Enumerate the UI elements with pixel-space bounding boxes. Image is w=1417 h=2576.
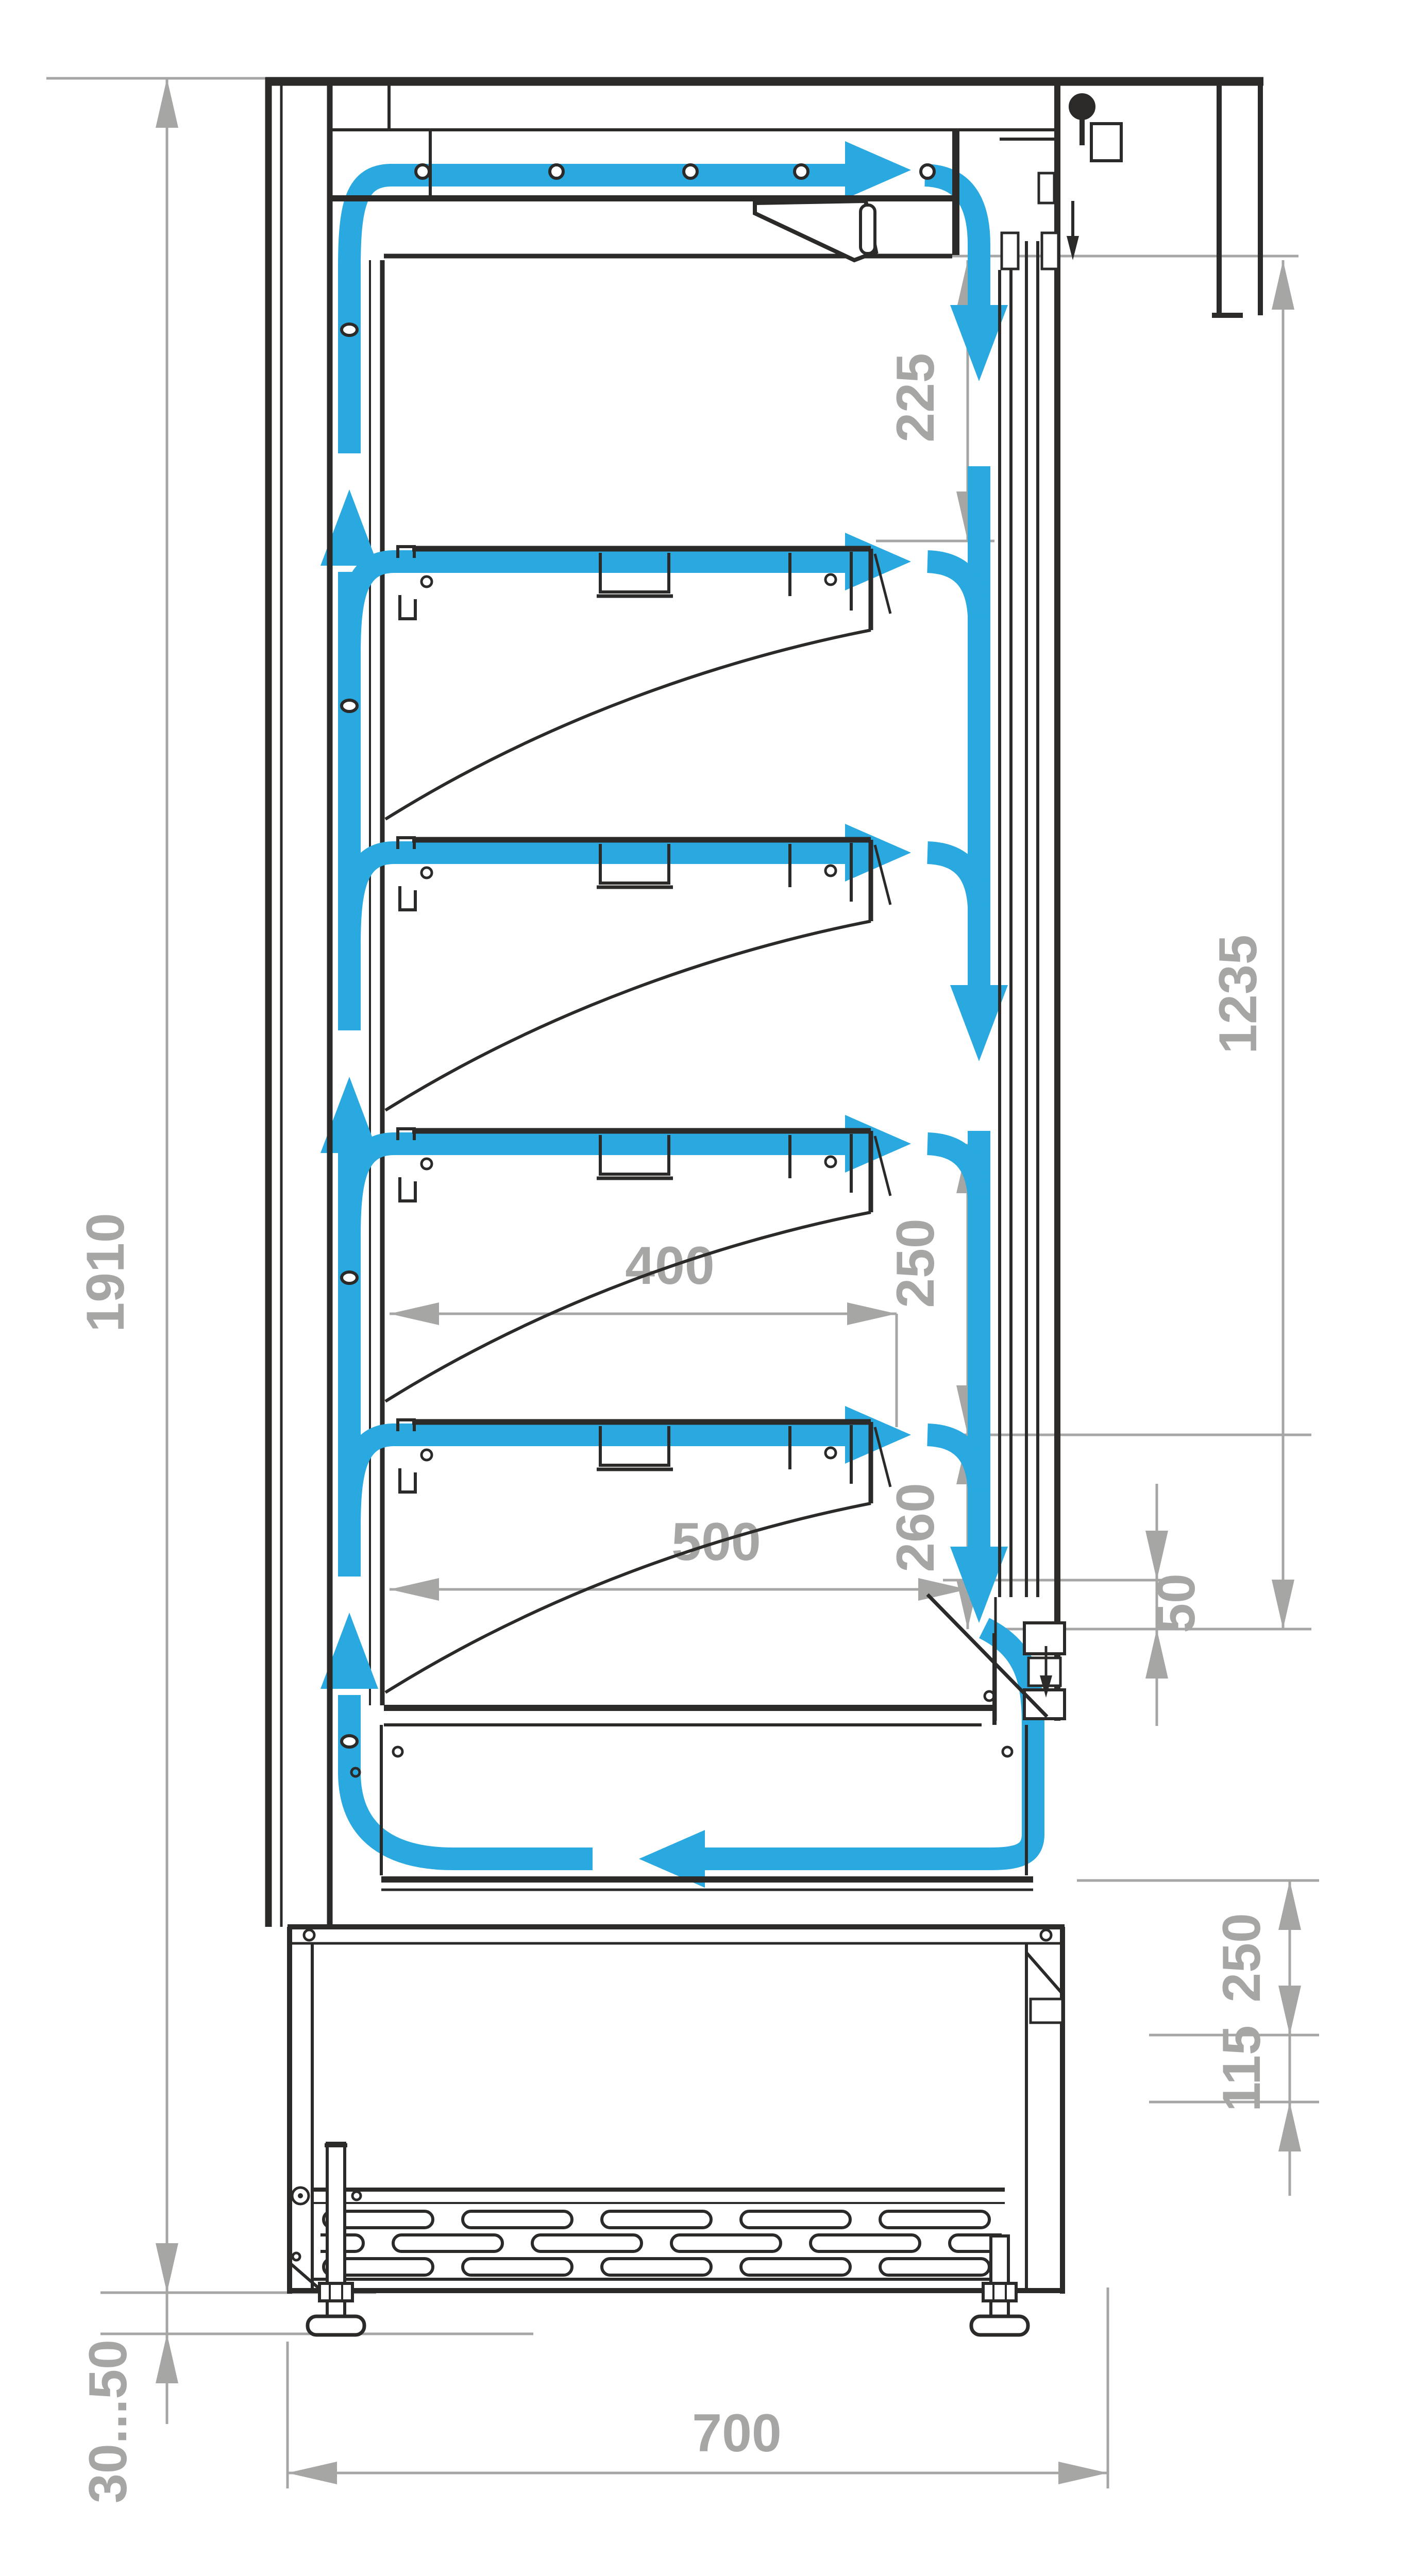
back-panel-lines	[370, 260, 382, 1705]
dim-shelf-pitch-label: 250	[886, 1218, 946, 1308]
dim-bottom-gap-label: 260	[886, 1483, 946, 1572]
dim-base-height-label: 250	[1212, 1913, 1272, 2003]
dim-top-gap-label: 225	[886, 353, 946, 443]
shelf-2	[385, 838, 890, 1110]
dim-return-slot-label: 50	[1146, 1573, 1206, 1633]
shelf-1	[385, 547, 890, 819]
dim-door-opening-label: 1235	[1208, 935, 1268, 1054]
shelves	[385, 547, 890, 1692]
dim-overall-depth-label: 700	[692, 2403, 782, 2463]
shelf-4	[385, 1420, 890, 1692]
diagram-page: 1910 30...50 225 250 260 400 500 50 1235…	[0, 0, 1417, 2576]
cabinet-cross-section-drawing: 1910 30...50 225 250 260 400 500 50 1235…	[0, 0, 1417, 2576]
dim-foot-adjust-label: 30...50	[78, 2340, 138, 2503]
dim-plinth-height-label: 115	[1212, 2025, 1272, 2112]
dim-overall-height-label: 1910	[76, 1213, 136, 1332]
